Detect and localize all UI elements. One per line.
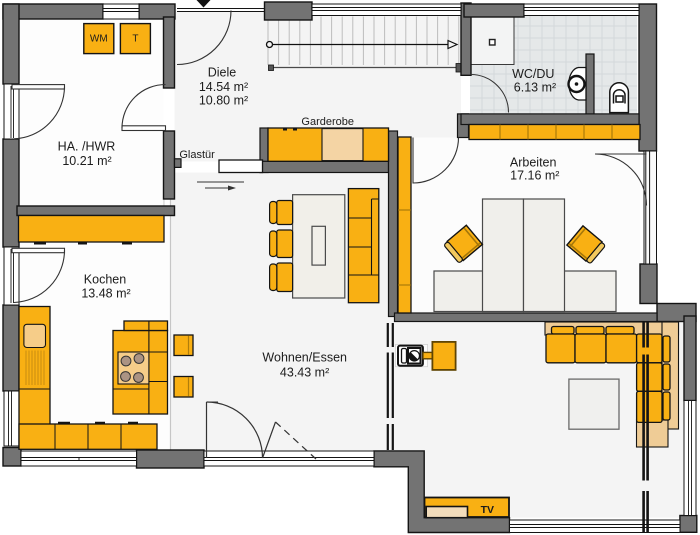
svg-text:43.43 m²: 43.43 m² (280, 366, 329, 380)
svg-text:10.21 m²: 10.21 m² (62, 154, 111, 168)
svg-text:Arbeiten: Arbeiten (510, 156, 557, 170)
svg-text:WC/DU: WC/DU (512, 67, 554, 81)
svg-text:Garderobe: Garderobe (301, 116, 354, 128)
svg-text:10.80 m²: 10.80 m² (199, 94, 248, 108)
svg-text:14.54 m²: 14.54 m² (199, 80, 248, 94)
svg-text:13.48 m²: 13.48 m² (81, 287, 130, 301)
svg-text:17.16 m²: 17.16 m² (510, 168, 559, 182)
svg-text:Wohnen/Essen: Wohnen/Essen (262, 350, 347, 364)
svg-text:TV: TV (481, 504, 494, 516)
svg-text:HA. /HWR: HA. /HWR (58, 140, 116, 154)
svg-text:WM: WM (90, 34, 108, 45)
svg-text:Kochen: Kochen (84, 273, 126, 287)
svg-text:Glastür: Glastür (179, 149, 215, 161)
svg-text:Diele: Diele (208, 66, 237, 80)
svg-text:T: T (132, 34, 138, 45)
svg-text:6.13 m²: 6.13 m² (514, 80, 556, 94)
